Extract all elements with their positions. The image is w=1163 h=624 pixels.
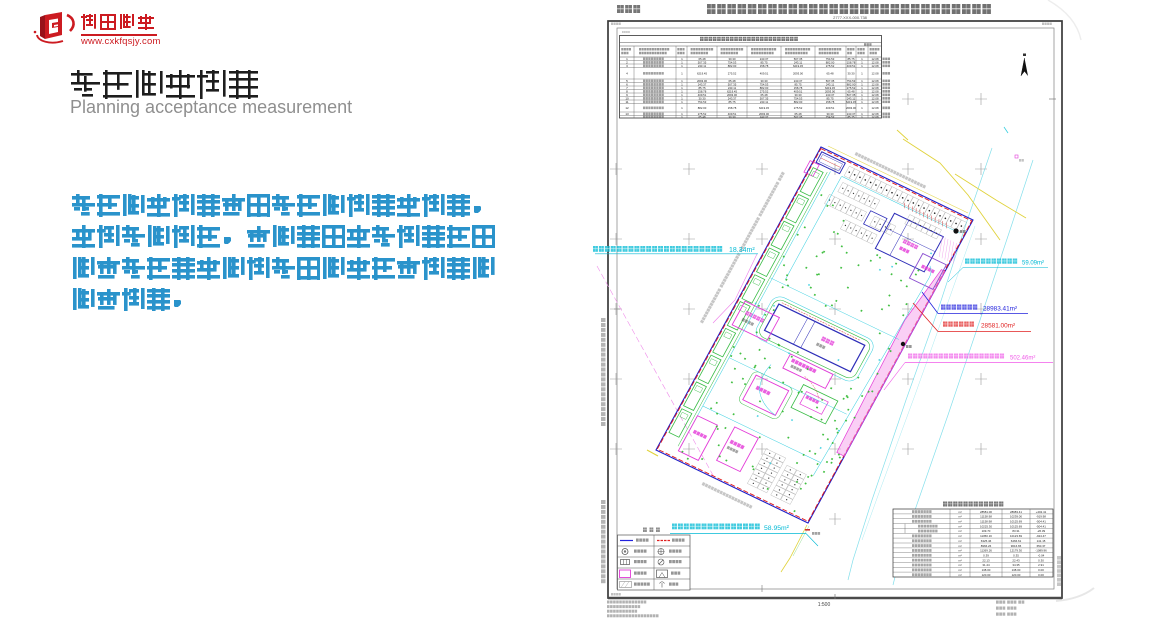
svg-text:m²: m²: [958, 549, 961, 553]
svg-text:10225.30: 10225.30: [980, 524, 992, 528]
svg-text:158.78: 158.78: [760, 64, 769, 68]
svg-text:28581.00m²: 28581.00m²: [981, 323, 1015, 330]
svg-text:6466.61: 6466.61: [1011, 539, 1022, 543]
svg-text:2093.00: 2093.00: [846, 106, 857, 110]
svg-text:83.31: 83.31: [1012, 529, 1020, 533]
svg-text:m²: m²: [958, 520, 961, 524]
svg-text:6325.46: 6325.46: [981, 539, 992, 543]
svg-text:275.52: 275.52: [728, 71, 737, 75]
svg-text:30.30: 30.30: [729, 115, 736, 119]
svg-text:12.08: 12.08: [872, 100, 879, 104]
svg-text:-504.41: -504.41: [1036, 524, 1046, 528]
svg-text:-504.41: -504.41: [1036, 520, 1046, 524]
svg-text:754.53: 754.53: [698, 100, 707, 104]
svg-text:10239.00: 10239.00: [1010, 515, 1022, 519]
svg-text:34.35: 34.35: [1012, 563, 1020, 567]
svg-text:m²: m²: [958, 558, 961, 562]
svg-text:58.95m²: 58.95m²: [764, 525, 790, 532]
svg-text:243.11: 243.11: [698, 64, 707, 68]
svg-text:11050.16: 11050.16: [980, 534, 992, 538]
svg-text:12179.30: 12179.30: [1010, 549, 1022, 553]
svg-text:-0.04: -0.04: [1038, 554, 1045, 558]
svg-text:243.11: 243.11: [760, 100, 769, 104]
svg-text:m²: m²: [958, 510, 961, 514]
svg-text:0.00: 0.00: [1038, 568, 1044, 572]
svg-text:243.37: 243.37: [760, 115, 769, 119]
svg-text:65.48: 65.48: [827, 71, 834, 75]
svg-text:85.75: 85.75: [729, 100, 736, 104]
svg-text:2.91: 2.91: [1038, 563, 1044, 567]
svg-text:138.00: 138.00: [1012, 568, 1021, 572]
svg-text:8966.26: 8966.26: [981, 544, 992, 548]
svg-text:m²: m²: [958, 534, 961, 538]
svg-text:-26.39: -26.39: [1037, 529, 1046, 533]
svg-text:59.09m²: 59.09m²: [1022, 261, 1044, 267]
svg-text:409.51: 409.51: [826, 106, 835, 110]
svg-text:6219.45: 6219.45: [697, 71, 708, 75]
svg-text:882.00: 882.00: [794, 100, 803, 104]
svg-text:28983.41m²: 28983.41m²: [983, 306, 1017, 313]
svg-text:275.52: 275.52: [794, 106, 803, 110]
svg-text:502.46m²: 502.46m²: [1010, 356, 1035, 362]
svg-text:-919.98: -919.98: [1036, 515, 1046, 519]
svg-text:409.51: 409.51: [847, 64, 856, 68]
svg-text:109.70: 109.70: [982, 529, 991, 533]
svg-text:650.37: 650.37: [1037, 544, 1046, 548]
svg-text:6219.45: 6219.45: [846, 100, 857, 104]
svg-text:409.51: 409.51: [760, 71, 769, 75]
svg-text:507.35: 507.35: [794, 115, 803, 119]
svg-text:22.43: 22.43: [1012, 558, 1020, 562]
svg-text:158.78: 158.78: [826, 100, 835, 104]
svg-text:0.00: 0.00: [1038, 573, 1044, 577]
svg-text:31.44: 31.44: [982, 563, 990, 567]
svg-text:13: 13: [625, 112, 629, 116]
svg-text:m²: m²: [958, 563, 961, 567]
svg-text:11158.98: 11158.98: [980, 520, 992, 524]
svg-text:0.35: 0.35: [1013, 554, 1019, 558]
svg-text:28581.00: 28581.00: [980, 510, 992, 514]
svg-text:10125.69: 10125.69: [1010, 520, 1022, 524]
svg-text:12.08: 12.08: [872, 115, 879, 119]
svg-text:6219.45: 6219.45: [793, 64, 804, 68]
svg-text:0.39: 0.39: [983, 554, 989, 558]
svg-text:6219.45: 6219.45: [759, 106, 770, 110]
svg-text:-1089.96: -1089.96: [1035, 549, 1047, 553]
svg-text:882.00: 882.00: [698, 106, 707, 110]
svg-text:11158.98: 11158.98: [980, 515, 992, 519]
svg-text:12: 12: [625, 106, 629, 110]
svg-text:141.15: 141.15: [1037, 539, 1046, 543]
svg-text:m²: m²: [958, 515, 961, 519]
svg-text:m²: m²: [958, 544, 961, 548]
svg-text:1:500: 1:500: [818, 602, 831, 608]
svg-text:22.13: 22.13: [982, 558, 990, 562]
svg-text:18.34m²: 18.34m²: [729, 247, 755, 254]
svg-text:12.08: 12.08: [872, 71, 879, 75]
svg-text:m²: m²: [958, 554, 961, 558]
svg-text:+402.41: +402.41: [1036, 510, 1047, 514]
svg-text:754.53: 754.53: [826, 115, 835, 119]
svg-text:275.52: 275.52: [826, 64, 835, 68]
svg-text:12.08: 12.08: [872, 64, 879, 68]
svg-text:28983.41: 28983.41: [1010, 510, 1022, 514]
svg-text:120.00: 120.00: [1012, 573, 1021, 577]
svg-text:138.00: 138.00: [982, 568, 991, 572]
svg-text:65.48: 65.48: [699, 115, 706, 119]
svg-text:10123.69: 10123.69: [1010, 534, 1022, 538]
svg-text:m²: m²: [958, 524, 961, 528]
svg-text:120.00: 120.00: [982, 573, 991, 577]
svg-text:-924.47: -924.47: [1036, 534, 1046, 538]
svg-text:158.78: 158.78: [728, 106, 737, 110]
svg-text:m²: m²: [958, 539, 961, 543]
svg-text:m²: m²: [958, 568, 961, 572]
svg-text:2777.XXX-000.738: 2777.XXX-000.738: [833, 15, 868, 20]
svg-text:2093.00: 2093.00: [793, 71, 804, 75]
svg-text:m²: m²: [958, 529, 961, 533]
svg-text:m²: m²: [958, 573, 961, 577]
svg-text:9616.65: 9616.65: [1011, 544, 1022, 548]
svg-text:12.08: 12.08: [872, 106, 879, 110]
svg-text:0.30: 0.30: [1038, 558, 1044, 562]
svg-text:11269.26: 11269.26: [980, 549, 992, 553]
svg-text:10125.69: 10125.69: [1010, 524, 1022, 528]
svg-text:85.75: 85.75: [848, 115, 855, 119]
svg-text:30.30: 30.30: [848, 71, 855, 75]
svg-text:882.00: 882.00: [728, 64, 737, 68]
svg-text:11: 11: [625, 100, 628, 104]
